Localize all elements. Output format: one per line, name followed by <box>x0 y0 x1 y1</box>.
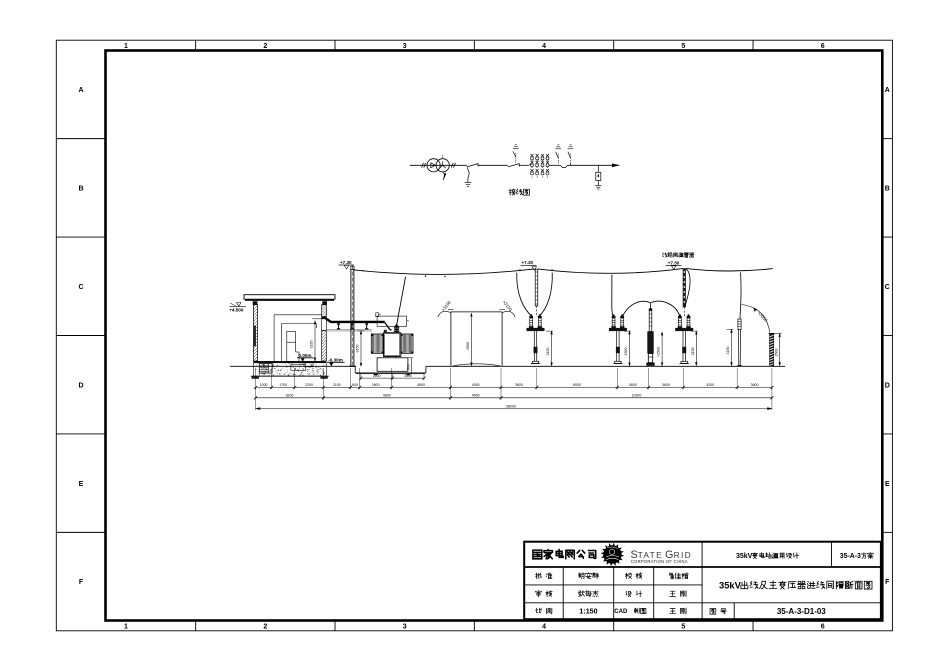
svg-text:C: C <box>78 284 83 291</box>
svg-text:1000: 1000 <box>260 383 268 387</box>
svg-text:4: 4 <box>542 623 546 630</box>
svg-text:3150: 3150 <box>691 347 695 355</box>
svg-text:2600: 2600 <box>404 374 412 378</box>
svg-text:B: B <box>78 185 83 192</box>
svg-text:+4.500: +4.500 <box>229 308 244 313</box>
svg-text:A: A <box>78 87 83 94</box>
svg-text:5: 5 <box>681 623 685 630</box>
svg-text:4500: 4500 <box>466 342 470 350</box>
svg-text:E: E <box>885 481 890 488</box>
svg-text:3: 3 <box>403 43 407 50</box>
svg-text:>3150: >3150 <box>502 299 514 312</box>
svg-text:500: 500 <box>407 364 411 370</box>
svg-text:>3050: >3050 <box>757 310 769 323</box>
svg-text:6: 6 <box>821 623 825 630</box>
svg-text:1:150: 1:150 <box>579 607 597 616</box>
svg-text:A: A <box>885 87 890 94</box>
svg-text:>3150: >3150 <box>440 299 452 312</box>
svg-text:2: 2 <box>263 623 267 630</box>
svg-text:3600: 3600 <box>662 383 670 387</box>
svg-text:3150: 3150 <box>546 347 550 355</box>
svg-text:600: 600 <box>352 383 358 387</box>
svg-text:1: 1 <box>124 43 128 50</box>
svg-text:3600: 3600 <box>515 383 523 387</box>
svg-text:>2500: >2500 <box>657 347 661 357</box>
svg-text:2100: 2100 <box>333 383 341 387</box>
svg-text:35kV: 35kV <box>736 553 753 560</box>
svg-text:2: 2 <box>263 43 267 50</box>
svg-text:3150: 3150 <box>355 345 359 353</box>
svg-text:D: D <box>885 382 890 389</box>
svg-text:1: 1 <box>124 623 128 630</box>
svg-text:D: D <box>78 382 83 389</box>
svg-text:CAD: CAD <box>614 609 628 615</box>
svg-text:3600: 3600 <box>629 383 637 387</box>
svg-text:4: 4 <box>542 43 546 50</box>
svg-text:6: 6 <box>821 43 825 50</box>
svg-text:4200: 4200 <box>706 383 714 387</box>
svg-text:CORPORATION OF CHINA: CORPORATION OF CHINA <box>631 559 688 564</box>
svg-text:35kV: 35kV <box>719 580 742 591</box>
svg-text:2200: 2200 <box>305 383 313 387</box>
svg-text:35-A-3: 35-A-3 <box>840 553 861 560</box>
svg-text:+7.30: +7.30 <box>668 260 680 265</box>
svg-text:4000: 4000 <box>472 394 480 398</box>
svg-text:E: E <box>79 481 84 488</box>
svg-text:F: F <box>885 579 890 586</box>
svg-text:+7.30: +7.30 <box>521 260 533 265</box>
svg-text:1700: 1700 <box>279 383 287 387</box>
svg-text:B: B <box>885 185 890 192</box>
svg-text:4000: 4000 <box>472 383 480 387</box>
svg-text:3: 3 <box>403 623 407 630</box>
svg-text:3600: 3600 <box>751 383 759 387</box>
svg-text:35-A-3-D1-03: 35-A-3-D1-03 <box>777 607 826 616</box>
svg-text:38000: 38000 <box>506 404 516 408</box>
svg-text:C: C <box>885 284 890 291</box>
svg-text:19200: 19200 <box>632 394 642 398</box>
svg-text:8000: 8000 <box>573 383 581 387</box>
svg-text:4500: 4500 <box>624 347 628 355</box>
svg-text:2600: 2600 <box>373 374 381 378</box>
svg-text:F: F <box>79 579 84 586</box>
svg-text:+7.30: +7.30 <box>340 260 352 265</box>
svg-text:9200: 9200 <box>286 394 294 398</box>
svg-text:2600: 2600 <box>372 383 380 387</box>
svg-text:5: 5 <box>681 43 685 50</box>
svg-text:4500: 4500 <box>417 383 425 387</box>
svg-text:3150: 3150 <box>310 341 314 349</box>
svg-text:2500: 2500 <box>774 349 778 357</box>
svg-text:9800: 9800 <box>383 394 391 398</box>
svg-text:-0.30m: -0.30m <box>328 357 343 362</box>
svg-text:3150: 3150 <box>726 347 730 355</box>
svg-text:0.00m: 0.00m <box>298 353 311 358</box>
